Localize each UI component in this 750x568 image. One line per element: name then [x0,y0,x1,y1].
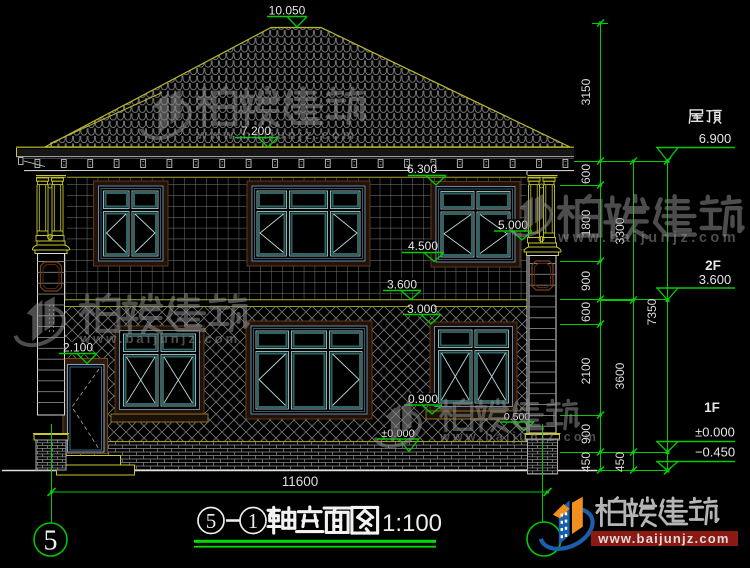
svg-text:www.baijunjz.com: www.baijunjz.com [196,127,357,142]
svg-text:3150: 3150 [579,78,593,105]
svg-text:11600: 11600 [282,474,319,489]
svg-text:1:100: 1:100 [382,510,442,537]
svg-text:5: 5 [44,526,58,557]
svg-text:4.500: 4.500 [408,239,438,253]
svg-text:0.900: 0.900 [408,392,438,406]
svg-text:900: 900 [579,271,593,291]
svg-text:−0.450: −0.450 [695,445,735,460]
svg-text:www.baijunjz.com: www.baijunjz.com [79,331,240,346]
svg-text:2100: 2100 [579,357,593,384]
svg-text:1F: 1F [704,400,720,415]
svg-text:600: 600 [579,164,593,184]
svg-text:www.baijunjz.com: www.baijunjz.com [597,531,729,546]
svg-text:600: 600 [579,302,593,322]
svg-text:7350: 7350 [645,298,659,325]
svg-text:3.600: 3.600 [387,278,417,292]
svg-text:±0.000: ±0.000 [695,425,735,440]
svg-text:2F: 2F [705,258,721,273]
svg-text:3600: 3600 [613,362,627,389]
svg-text:450: 450 [579,452,593,472]
svg-text:www.baijunjz.com: www.baijunjz.com [557,230,739,246]
svg-text:1: 1 [248,509,259,533]
svg-text:www.baijunjz.com: www.baijunjz.com [439,430,599,444]
svg-text:6.300: 6.300 [407,162,437,176]
svg-text:6.900: 6.900 [699,131,732,146]
svg-text:5: 5 [206,509,217,533]
svg-text:450: 450 [613,452,627,472]
svg-text:3.600: 3.600 [699,272,732,287]
svg-text:5.000: 5.000 [498,218,528,232]
svg-text:10.050: 10.050 [269,4,306,18]
